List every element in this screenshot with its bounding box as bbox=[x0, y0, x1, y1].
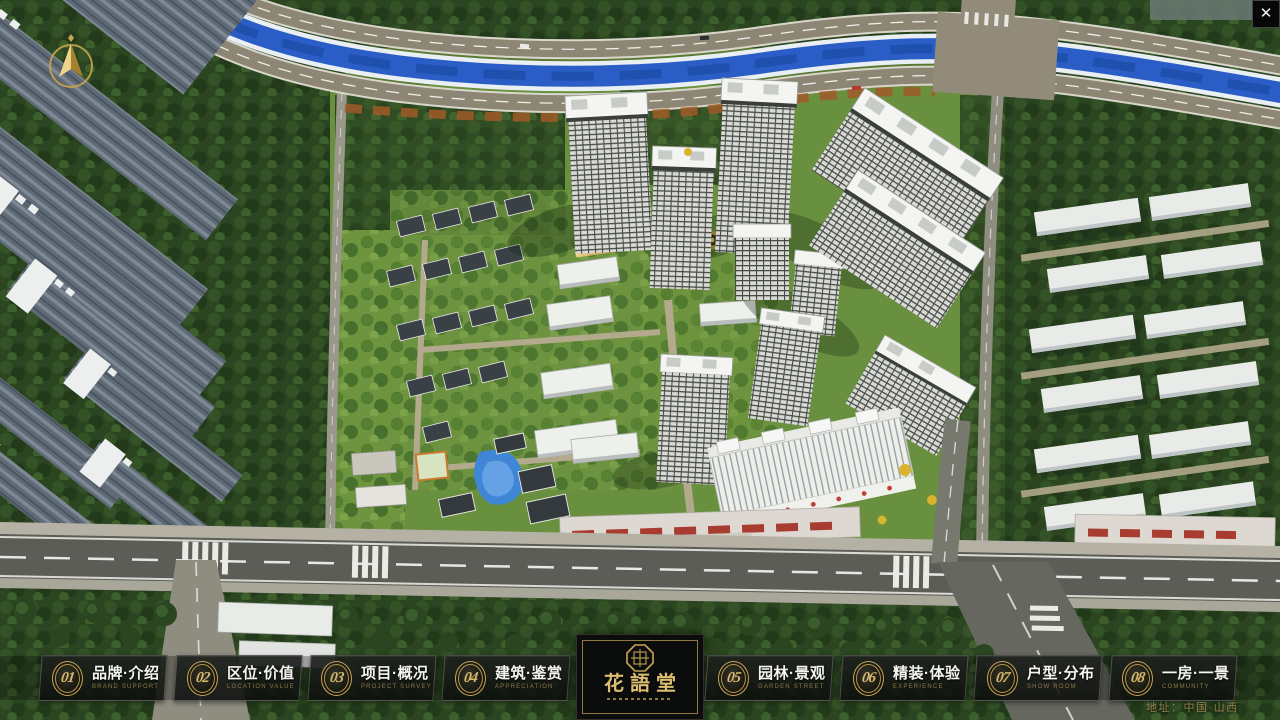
nav-item-number-badge: 04 bbox=[455, 661, 486, 696]
logo-title: 花語堂 bbox=[598, 674, 682, 694]
close-button[interactable]: ✕ bbox=[1252, 0, 1280, 28]
nav-item-label-en: COMMUNITY bbox=[1162, 684, 1210, 688]
nav-item-project-overview[interactable]: 03 项目·概况 PROJECT SURVEY bbox=[307, 655, 436, 701]
nav-item-label-en: PROJECT SURVEY bbox=[361, 684, 432, 688]
nav-item-label-en: SHOW ROOM bbox=[1027, 684, 1077, 688]
logo-subtitle-rule bbox=[607, 698, 673, 700]
nav-item-label-en: EXPERIENCE bbox=[893, 684, 944, 688]
nav-item-label-en: GARDEN STREET bbox=[758, 684, 825, 688]
nav-item-number-badge: 02 bbox=[187, 661, 218, 696]
nav-item-number-badge: 05 bbox=[718, 661, 749, 696]
nav-item-label-zh: 精装·体验 bbox=[893, 666, 977, 681]
nav-item-number-badge: 03 bbox=[321, 661, 352, 696]
presentation-window: ✕ 01 品牌·介绍 BRAND SUPPORT 02 区位·价值 LOCATI… bbox=[0, 0, 1280, 720]
nav-item-location-value[interactable]: 02 区位·价值 LOCATION VALUE bbox=[173, 655, 302, 701]
nav-item-number-badge: 06 bbox=[853, 661, 884, 696]
nav-item-label-en: APPRECIATION bbox=[495, 684, 554, 688]
nav-item-architecture[interactable]: 04 建筑·鉴赏 APPRECIATION bbox=[441, 655, 570, 701]
nav-item-number-badge: 01 bbox=[52, 661, 83, 696]
nav-item-label-en: BRAND SUPPORT bbox=[92, 684, 159, 688]
masterplan-3d-view[interactable] bbox=[0, 0, 1280, 720]
nav-item-label-zh: 户型·分布 bbox=[1027, 666, 1110, 681]
address-text: 地址：中国·山西 bbox=[1146, 699, 1239, 715]
nav-item-room-view[interactable]: 08 一房·一景 COMMUNITY bbox=[1108, 655, 1237, 701]
compass-icon bbox=[42, 30, 100, 94]
nav-item-landscape[interactable]: 05 园林·景观 GARDEN STREET bbox=[704, 655, 833, 701]
masterplan-render bbox=[0, 0, 1280, 720]
nav-item-number-badge: 07 bbox=[987, 661, 1018, 696]
nav-item-label-zh: 一房·一景 bbox=[1162, 666, 1242, 681]
nav-item-brand-intro[interactable]: 01 品牌·介绍 BRAND SUPPORT bbox=[38, 655, 167, 701]
nav-item-floorplan-distribution[interactable]: 07 户型·分布 SHOW ROOM bbox=[973, 655, 1102, 701]
nav-item-number-badge: 08 bbox=[1122, 661, 1153, 696]
logo-panel[interactable]: 花語堂 bbox=[576, 634, 704, 720]
logo-seal-icon bbox=[626, 644, 654, 672]
nav-item-label-en: LOCATION VALUE bbox=[227, 684, 295, 688]
nav-item-interior-experience[interactable]: 06 精装·体验 EXPERIENCE bbox=[839, 655, 968, 701]
